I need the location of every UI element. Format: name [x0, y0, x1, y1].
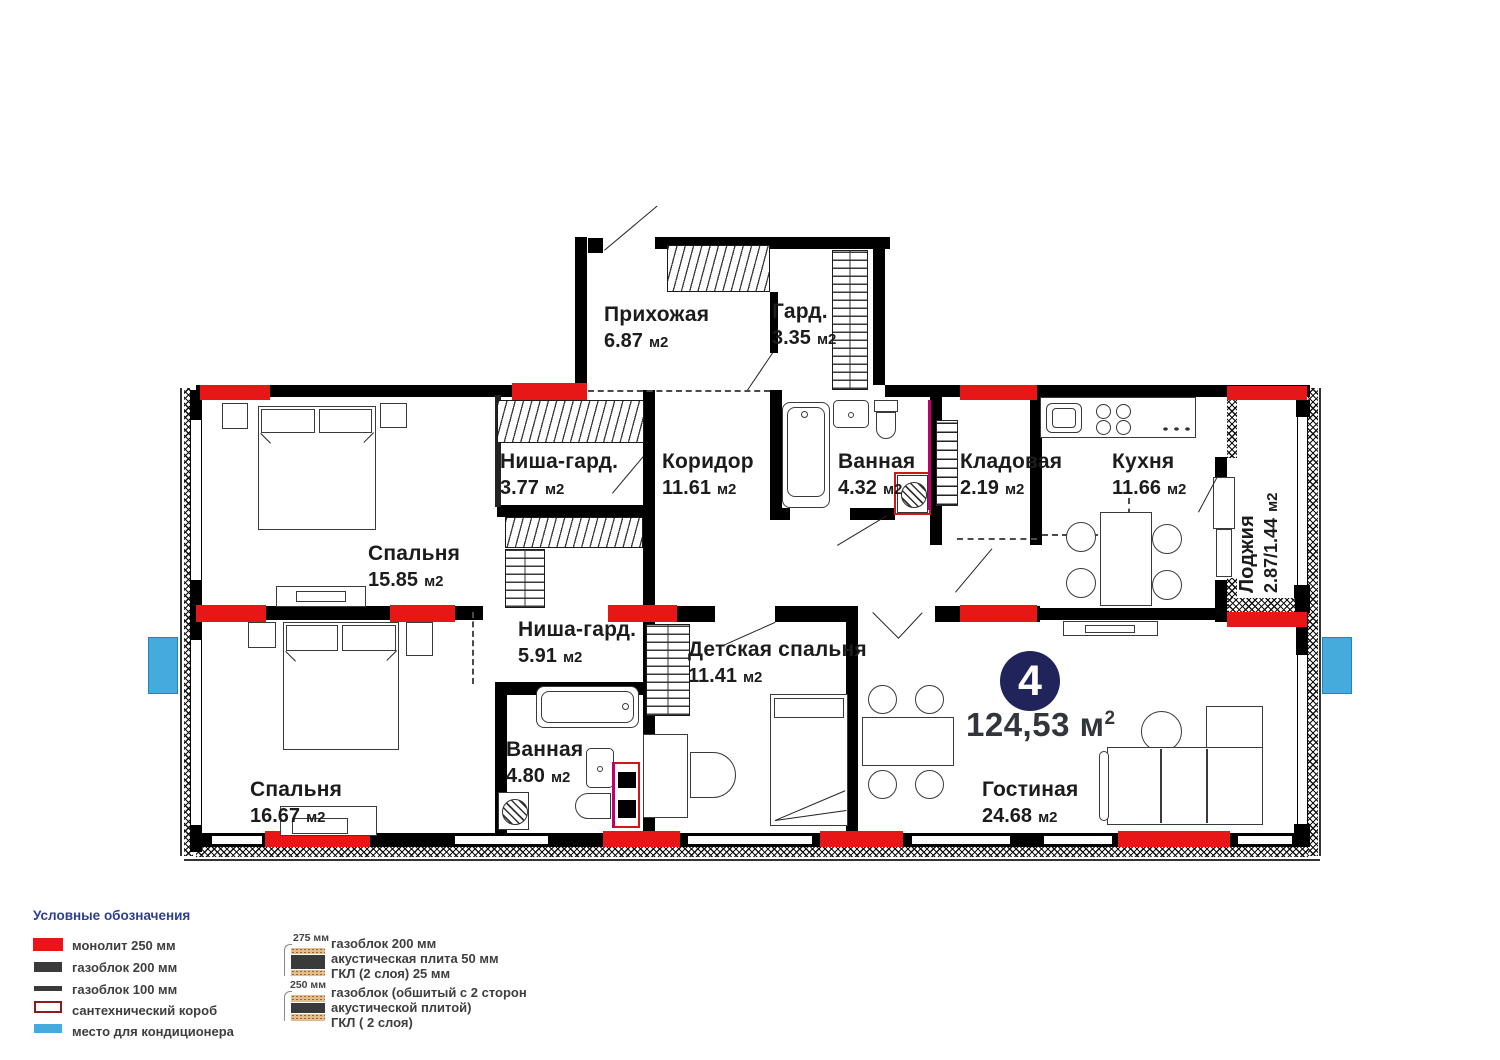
balcony-door [1213, 477, 1235, 529]
layer-gazoblok [291, 955, 325, 969]
bathtub-inner [541, 691, 634, 723]
facade-line-right [1319, 388, 1321, 856]
shelf-rack [936, 420, 958, 506]
coffee-table [1141, 711, 1182, 752]
chair [868, 770, 897, 799]
wardrobe-hatch [497, 400, 644, 443]
sofa-seam [1206, 749, 1208, 823]
kitchen-table [1100, 512, 1152, 606]
window [1297, 417, 1308, 585]
wall [770, 390, 782, 520]
door-swing [747, 353, 773, 391]
monolith-block [1227, 612, 1307, 627]
washing-machine-drum [502, 799, 528, 825]
room-label-koridor: Коридор 11.61м2 [662, 450, 754, 499]
facade-hatch-bottom [196, 847, 1308, 857]
dresser-inner [296, 591, 346, 602]
legend-label: место для кондиционера [72, 1024, 234, 1039]
kitchen-sink-inner [1052, 408, 1076, 428]
wall [1040, 608, 1227, 620]
monolith-block [390, 605, 455, 622]
wall [770, 508, 790, 520]
wardrobe-hatch [646, 624, 690, 716]
wall [850, 508, 895, 520]
monolith-block [820, 831, 903, 847]
layer-acoustic [291, 995, 325, 1002]
ac-unit-right [1322, 637, 1352, 694]
loggia-hatch [1228, 598, 1295, 612]
sofa-seam [1160, 749, 1162, 823]
toilet [575, 793, 611, 819]
wall-type-size: 275 мм [293, 932, 329, 944]
dashed-boundary [957, 538, 1037, 540]
facade-line-left [180, 388, 182, 856]
window [1238, 835, 1292, 845]
legend-swatch-korob [34, 1001, 62, 1013]
legend-label: монолит 250 мм [72, 938, 176, 953]
monolith-block [603, 831, 680, 847]
door-swing [898, 612, 923, 638]
room-label-lodzhiya: Лоджия 2.87/1.44м2 [1236, 443, 1282, 593]
room-label-vannaya-480: Ванная 4.80м2 [506, 738, 583, 787]
nightstand [406, 622, 433, 656]
room-label-vannaya-432: Ванная 4.32м2 [838, 450, 915, 499]
sink-drain [597, 766, 603, 772]
chair [915, 770, 944, 799]
wall [1296, 400, 1310, 417]
plumbing-riser [928, 400, 931, 510]
wall-type-line: газоблок (обшитый с 2 сторон [331, 985, 527, 1000]
sofa-armrest [1099, 751, 1109, 821]
wardrobe-hatch [832, 250, 868, 390]
legend-label: газоблок 200 мм [72, 960, 177, 975]
facade-line-bottom [184, 859, 1320, 861]
legend-swatch-monolith [33, 938, 63, 951]
counter-dots-icon [1158, 423, 1190, 432]
wall [873, 249, 885, 385]
window [1297, 655, 1308, 824]
facade-hatch-right [1308, 388, 1318, 856]
layer-acoustic [291, 948, 325, 954]
room-label-prihozhaya: Прихожая 6.87м2 [604, 303, 709, 352]
legend-title: Условные обозначения [33, 908, 190, 923]
monolith-block [1227, 386, 1307, 400]
plumbing-riser [612, 762, 615, 828]
balcony-door-leaf [1216, 529, 1232, 577]
stove-burner [1096, 420, 1111, 435]
window [688, 835, 812, 845]
room-label-gostinaya: Гостиная 24.68м2 [982, 778, 1079, 827]
legend-label: сантехнический короб [72, 1003, 217, 1018]
nightstand [222, 403, 248, 429]
chair [915, 685, 944, 714]
wall-type-line: ГКЛ (2 слоя) 25 мм [331, 966, 450, 981]
nightstand [248, 622, 276, 648]
bathtub-drain [801, 411, 808, 418]
tv-stand-inner [1085, 625, 1135, 633]
room-label-spalnya-1585: Спальня 15.85м2 [368, 542, 460, 591]
chair [868, 685, 897, 714]
legend-label: газоблок 100 мм [72, 982, 177, 997]
monolith-block [200, 385, 270, 400]
wall [588, 238, 603, 253]
monolith-block [1118, 831, 1230, 847]
wall [1215, 457, 1227, 477]
nightstand [380, 403, 407, 428]
room-label-kuhnya: Кухня 11.66м2 [1112, 450, 1186, 499]
bed-pillow [261, 409, 315, 433]
desk [643, 734, 688, 818]
legend-swatch-wall-275 [291, 948, 325, 976]
wall [1215, 580, 1227, 622]
monolith-block [960, 385, 1037, 400]
room-label-detskaya: Детская спальня 11.41м2 [688, 638, 867, 687]
chair [1152, 524, 1182, 554]
window [190, 640, 202, 825]
desk-chair [690, 752, 736, 798]
plumbing-shaft [618, 772, 636, 788]
wall-type-line: акустическая плита 50 мм [331, 951, 499, 966]
ac-unit-left [148, 637, 178, 694]
apartment-number-badge: 4 [1000, 651, 1060, 711]
wall-type-size: 250 мм [290, 979, 326, 991]
wall [1294, 585, 1310, 613]
legend-swatch-wall-250 [291, 995, 325, 1021]
bathtub-drain [622, 703, 629, 710]
chair [1066, 522, 1096, 552]
door-swing [955, 548, 992, 592]
bed-pillow [286, 625, 338, 651]
room-label-nisha-377: Ниша-гард. 3.77м2 [500, 450, 618, 499]
layer-acoustic [291, 970, 325, 976]
layer-gazoblok [291, 1003, 325, 1013]
door-swing [872, 612, 899, 639]
stove-burner [1116, 420, 1131, 435]
toilet-tank [874, 400, 898, 412]
door-swing [604, 206, 657, 251]
toilet [876, 412, 896, 439]
monolith-block [196, 605, 266, 622]
dashed-boundary [588, 390, 770, 392]
wall [497, 505, 655, 517]
wall-type-line: газоблок 200 мм [331, 936, 436, 951]
chair [1152, 570, 1182, 600]
monolith-block [512, 383, 587, 400]
dining-table [862, 717, 954, 766]
window [1044, 835, 1112, 845]
dashed-boundary [472, 612, 474, 684]
monolith-block [960, 605, 1037, 622]
window [190, 420, 202, 580]
wardrobe-hatch [667, 245, 770, 292]
layer-acoustic [291, 1014, 325, 1021]
chair [1066, 568, 1096, 598]
room-label-kladovaya: Кладовая 2.19м2 [960, 450, 1062, 499]
floor-plan: Прихожая 6.87м2 Гард. 3.35м2 Ниша-гард. … [0, 0, 1500, 1060]
room-label-spalnya-1667: Спальня 16.67м2 [250, 778, 342, 827]
total-area: 124,53 м2 [966, 706, 1116, 744]
bed-pillow [774, 698, 844, 718]
legend-swatch-gazoblok100 [34, 986, 62, 991]
legend-swatch-gazoblok200 [34, 962, 62, 972]
wall-type-line: акустической плитой) [331, 1000, 472, 1015]
sofa [1107, 747, 1263, 825]
legend-swatch-ac [34, 1024, 62, 1033]
window [912, 835, 1010, 845]
wall [677, 606, 715, 622]
stove-burner [1096, 404, 1111, 419]
stove-burner [1116, 404, 1131, 419]
bed-pillow [342, 625, 396, 651]
washing-machine [498, 792, 529, 830]
plumbing-shaft [618, 800, 636, 818]
wall [575, 237, 587, 385]
wardrobe-hatch [505, 517, 643, 548]
wall-type-line: ГКЛ ( 2 слоя) [331, 1015, 413, 1030]
stove [1094, 402, 1142, 436]
room-label-gard: Гард. 3.35м2 [772, 300, 836, 349]
sink-drain [848, 412, 854, 418]
bed-pillow [319, 409, 372, 433]
bathtub-inner [787, 407, 825, 497]
wardrobe-hatch [505, 549, 545, 608]
window [455, 835, 548, 845]
window [212, 835, 262, 845]
room-label-nisha-591: Ниша-гард. 5.91м2 [518, 618, 636, 667]
